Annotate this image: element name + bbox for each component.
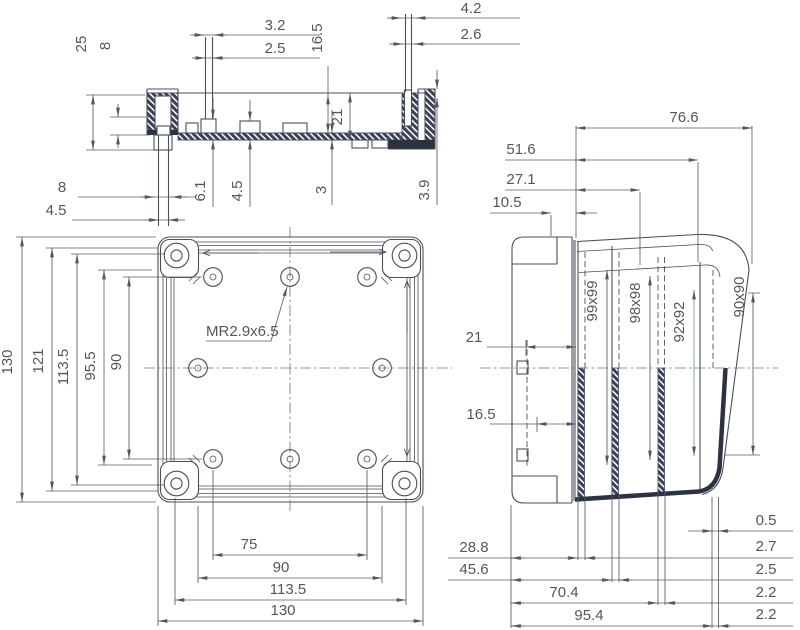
- dim-0-5: 0.5: [756, 512, 777, 529]
- dim-95-5: 95.5: [82, 351, 99, 380]
- thread-callout: MR2.9x6.5: [206, 323, 279, 340]
- dim-113-5-left: 113.5: [55, 349, 72, 385]
- dim-90x90: 90x90: [731, 277, 748, 318]
- dim-3-9: 3.9: [416, 180, 433, 201]
- dim-130-bottom: 130: [270, 602, 295, 619]
- dim-4-5-mid: 4.5: [229, 181, 246, 202]
- dim-8-left: 8: [97, 42, 114, 50]
- dim-2-2-b: 2.2: [756, 606, 777, 623]
- dim-92x92: 92x92: [671, 302, 688, 343]
- dim-27-1: 27.1: [506, 171, 535, 188]
- dim-28-8: 28.8: [459, 539, 488, 556]
- dim-51-6: 51.6: [506, 141, 535, 158]
- drawing-canvas: 25 8 3.2 2.5 16.5 4.2 2.6 21 8 4.5 6.1 4…: [0, 0, 800, 630]
- dim-2-7: 2.7: [756, 538, 777, 555]
- dim-95-4: 95.4: [574, 607, 603, 624]
- side-view: 99x99 98x98 92x92 90x90 76.6 51.6 27.1 1…: [448, 109, 793, 628]
- dim-2-6: 2.6: [461, 26, 482, 43]
- dim-25: 25: [73, 36, 90, 53]
- dim-45-6: 45.6: [459, 561, 488, 578]
- dim-90-left: 90: [108, 354, 125, 371]
- dim-75: 75: [241, 536, 258, 553]
- dim-121: 121: [30, 348, 47, 373]
- dim-16-5-side: 16.5: [466, 406, 495, 423]
- dim-4-2: 4.2: [461, 0, 482, 17]
- technical-drawing-page: 25 8 3.2 2.5 16.5 4.2 2.6 21 8 4.5 6.1 4…: [0, 0, 800, 630]
- dim-21-side: 21: [466, 329, 483, 346]
- bottom-view: MR2.9x6.5 130 121 113.5 95.5 90 75 90 11…: [0, 227, 452, 626]
- dim-4-5-bottom: 4.5: [46, 202, 67, 219]
- dim-2-2-a: 2.2: [756, 584, 777, 601]
- dim-113-5-bottom: 113.5: [270, 581, 306, 598]
- dim-98x98: 98x98: [627, 283, 644, 324]
- dim-90-bottom: 90: [273, 559, 290, 576]
- dim-6-1: 6.1: [192, 181, 209, 202]
- dim-130-left: 130: [0, 349, 16, 374]
- dim-99x99: 99x99: [584, 281, 601, 322]
- dim-21-section: 21: [329, 109, 346, 126]
- dim-10-5: 10.5: [492, 194, 521, 211]
- dim-2-5: 2.5: [265, 40, 286, 57]
- dim-3-2: 3.2: [265, 17, 286, 34]
- dim-8-bottom: 8: [58, 179, 66, 196]
- section-view: 25 8 3.2 2.5 16.5 4.2 2.6 21 8 4.5 6.1 4…: [46, 0, 520, 226]
- dim-76-6: 76.6: [669, 109, 698, 126]
- dim-3: 3: [313, 186, 330, 194]
- dim-70-4: 70.4: [549, 584, 578, 601]
- dim-16-5-section: 16.5: [309, 23, 326, 52]
- dim-2-5: 2.5: [756, 561, 777, 578]
